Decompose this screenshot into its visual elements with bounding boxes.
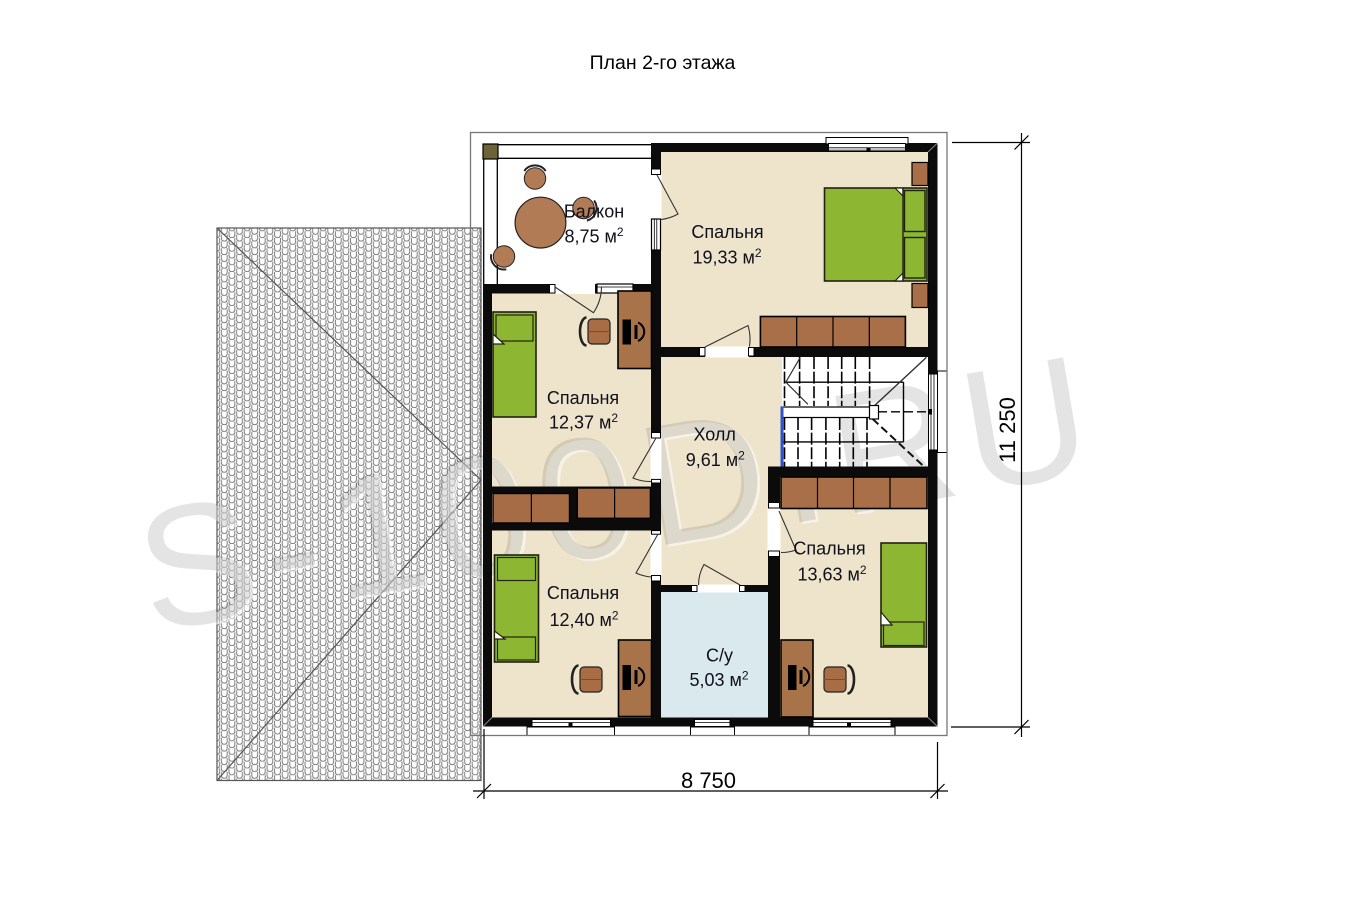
svg-text:Спальня: Спальня xyxy=(793,539,865,559)
svg-text:Спальня: Спальня xyxy=(547,388,619,408)
svg-text:Холл: Холл xyxy=(693,424,735,444)
svg-text:8,75 м2: 8,75 м2 xyxy=(564,225,623,247)
svg-text:Спальня: Спальня xyxy=(691,222,763,242)
svg-text:Спальня: Спальня xyxy=(547,583,619,603)
svg-text:Балкон: Балкон xyxy=(564,202,624,222)
svg-text:12,37 м2: 12,37 м2 xyxy=(549,411,618,433)
svg-text:План 2-го этажа: План 2-го этажа xyxy=(590,52,736,74)
svg-text:5,03 м2: 5,03 м2 xyxy=(689,669,748,691)
svg-text:8 750: 8 750 xyxy=(681,768,736,793)
svg-text:13,63 м2: 13,63 м2 xyxy=(797,563,866,585)
svg-text:9,61 м2: 9,61 м2 xyxy=(686,449,745,471)
svg-text:19,33 м2: 19,33 м2 xyxy=(692,246,761,268)
svg-text:С/у: С/у xyxy=(706,646,733,666)
svg-text:12,40 м2: 12,40 м2 xyxy=(549,609,618,631)
svg-text:11 250: 11 250 xyxy=(995,397,1020,463)
